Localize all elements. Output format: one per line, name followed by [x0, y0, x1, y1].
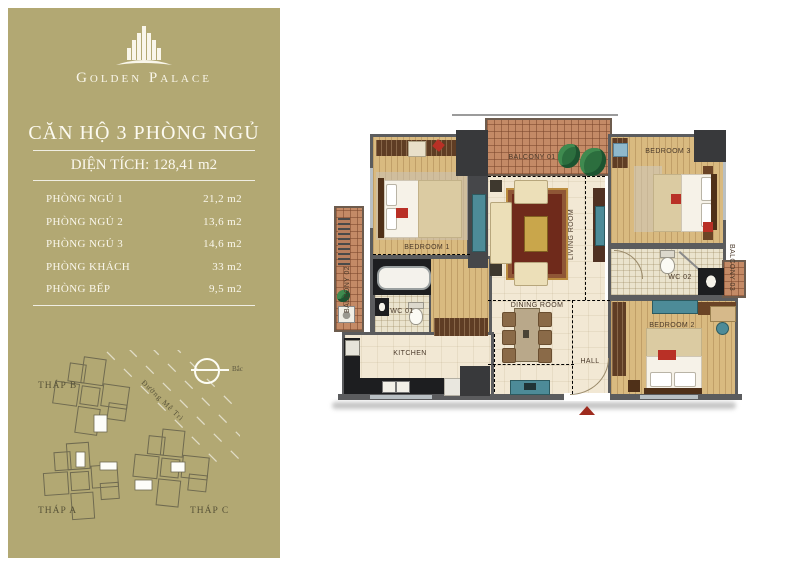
- entrance-arrow-icon: [579, 406, 595, 415]
- floor-plan: BEDROOM 1 BEDROOM 2 BEDROOM 3 LIVING ROO…: [322, 110, 750, 416]
- room-label: PHÒNG NGỦ 1: [46, 193, 123, 205]
- window: [723, 158, 726, 220]
- fridge-icon: [345, 340, 360, 356]
- room-area: 14,6 m2: [203, 238, 242, 250]
- window: [370, 168, 373, 228]
- boundary-dashed: [373, 254, 470, 255]
- room-area: 9,5 m2: [209, 283, 242, 295]
- window: [640, 395, 698, 399]
- decor-red-tag: [703, 222, 713, 232]
- sofa-icon: [490, 202, 512, 264]
- boundary-dashed: [585, 176, 586, 300]
- label-hall: HALL: [570, 358, 610, 365]
- boundary-dashed: [572, 300, 573, 394]
- boundary-dashed: [488, 364, 574, 365]
- room-area-table: PHÒNG NGỦ 1 21,2 m2 PHÒNG NGỦ 2 13,6 m2 …: [46, 188, 242, 301]
- room-area: 33 m2: [212, 261, 242, 273]
- info-sidebar: Golden Palace CĂN HỘ 3 PHÒNG NGỦ DIỆN TÍ…: [8, 8, 280, 558]
- pillow: [386, 184, 397, 206]
- room-label: PHÒNG KHÁCH: [46, 261, 130, 273]
- pillow: [674, 372, 696, 387]
- wardrobe-icon: [612, 302, 626, 376]
- chair-icon: [502, 312, 516, 327]
- chair-icon: [716, 322, 729, 335]
- room-label: PHÒNG NGỦ 2: [46, 216, 123, 228]
- armchair-icon: [514, 180, 548, 204]
- label-bedroom2: BEDROOM 2: [632, 322, 712, 329]
- pillow: [650, 372, 672, 387]
- toilet-icon: [660, 257, 675, 274]
- boundary-dashed: [488, 176, 605, 177]
- table-row: PHÒNG NGỦ 2 13,6 m2: [46, 211, 242, 234]
- nightstand: [703, 232, 713, 240]
- plan-shadow: [332, 402, 736, 409]
- sink-icon: [698, 268, 724, 295]
- brochure-page: Golden Palace CĂN HỘ 3 PHÒNG NGỦ DIỆN TÍ…: [0, 0, 800, 566]
- tower-c-label: THÁP C: [190, 506, 229, 516]
- closet-icon: [434, 318, 488, 336]
- room-label: PHÒNG BẾP: [46, 283, 110, 295]
- tower-a-label: THÁP A: [38, 506, 77, 516]
- boundary-dashed: [488, 300, 610, 301]
- table-row: PHÒNG NGỦ 1 21,2 m2: [46, 188, 242, 211]
- golden-palace-logo-icon: [112, 24, 176, 70]
- side-table: [490, 264, 502, 276]
- bed-blanket: [418, 180, 462, 238]
- bed-headboard: [644, 388, 702, 394]
- apartment-title: CĂN HỘ 3 PHÒNG NGỦ: [8, 122, 280, 145]
- divider-line: [33, 305, 255, 306]
- label-bedroom1: BEDROOM 1: [392, 244, 462, 251]
- chair-icon: [502, 348, 516, 363]
- decor-red-throw: [658, 350, 676, 360]
- nightstand: [628, 380, 640, 392]
- label-wc2: WC 02: [652, 274, 708, 281]
- bathtub-icon: [377, 266, 431, 290]
- label-balcony2: BALCONY 02: [344, 252, 351, 326]
- label-dining: DINING ROOM: [490, 302, 584, 309]
- table-row: PHÒNG KHÁCH 33 m2: [46, 256, 242, 279]
- chair-icon: [502, 330, 516, 345]
- decor-box: [613, 143, 628, 157]
- armchair-icon: [514, 262, 548, 286]
- coffee-table-icon: [524, 216, 548, 252]
- label-kitchen: KITCHEN: [378, 350, 442, 357]
- divider-line: [33, 150, 255, 151]
- tower-b-label: THÁP B: [38, 381, 77, 391]
- decor-red-throw: [396, 208, 408, 218]
- sideboard-detail: [524, 383, 536, 390]
- chair-icon: [538, 312, 552, 327]
- label-balcony1: BALCONY 01: [504, 154, 560, 161]
- boundary-dashed: [494, 334, 495, 392]
- site-plan-map: [30, 350, 240, 528]
- tv-icon: [472, 194, 486, 252]
- structural-column: [456, 130, 488, 176]
- table-row: PHÒNG NGỦ 3 14,6 m2: [46, 233, 242, 256]
- balcony-rail: [452, 114, 618, 116]
- brand-name: Golden Palace: [8, 70, 280, 87]
- structural-column: [694, 130, 726, 162]
- structural-column: [460, 366, 490, 396]
- label-living: LIVING ROOM: [568, 204, 575, 264]
- chair-icon: [538, 348, 552, 363]
- tv-console: [652, 300, 698, 314]
- sink-basin-icon: [396, 381, 410, 393]
- label-bedroom3: BEDROOM 3: [628, 148, 708, 155]
- dresser-icon: [408, 141, 426, 157]
- desk-icon: [710, 306, 736, 322]
- side-table: [490, 180, 502, 192]
- tv-icon: [595, 206, 605, 246]
- total-area: DIỆN TÍCH: 128,41 m2: [8, 157, 280, 174]
- table-center: [523, 330, 529, 338]
- nightstand: [703, 166, 713, 174]
- sink-basin-icon: [382, 381, 396, 393]
- table-row: PHÒNG BẾP 9,5 m2: [46, 278, 242, 301]
- divider-line: [33, 180, 255, 181]
- room-label: PHÒNG NGỦ 3: [46, 238, 123, 250]
- decor-red-throw: [671, 194, 681, 204]
- label-balcony3: BALCONY 03: [728, 238, 735, 298]
- label-wc1: WC 01: [378, 308, 426, 315]
- room-area: 13,6 m2: [203, 216, 242, 228]
- window: [370, 395, 432, 399]
- chair-icon: [538, 330, 552, 345]
- room-area: 21,2 m2: [203, 193, 242, 205]
